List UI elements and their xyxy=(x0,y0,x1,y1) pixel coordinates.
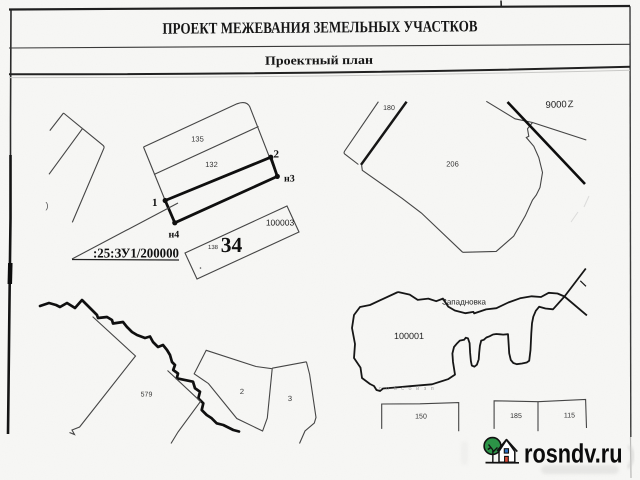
svg-text:rosndv.ru: rosndv.ru xyxy=(524,439,623,469)
svg-text:579: 579 xyxy=(141,392,153,399)
svg-text:9000Z: 9000Z xyxy=(545,99,574,111)
svg-text:1: 1 xyxy=(152,197,158,209)
svg-text:с о б с о й з п: с о б с о й з п xyxy=(379,385,436,392)
svg-text:3: 3 xyxy=(288,394,292,403)
svg-text:100001: 100001 xyxy=(394,331,424,341)
svg-text:150: 150 xyxy=(415,414,427,421)
svg-text:135: 135 xyxy=(191,135,204,144)
svg-text:Проектный план: Проектный план xyxy=(265,53,373,68)
svg-text:2: 2 xyxy=(240,387,244,396)
svg-text:206: 206 xyxy=(446,160,459,169)
svg-text:ПРОЕКТ МЕЖЕВАНИЯ ЗЕМЕЛЬНЫХ УЧА: ПРОЕКТ МЕЖЕВАНИЯ ЗЕМЕЛЬНЫХ УЧАСТКОВ xyxy=(162,18,477,37)
svg-text:Западновка: Западновка xyxy=(442,298,487,307)
svg-text:2: 2 xyxy=(274,149,280,161)
svg-text:185: 185 xyxy=(510,413,522,420)
svg-text:180: 180 xyxy=(383,105,395,112)
svg-text:100003: 100003 xyxy=(266,218,295,228)
svg-text:н4: н4 xyxy=(169,230,180,241)
svg-text:): ) xyxy=(46,201,49,211)
svg-text:н3: н3 xyxy=(284,174,295,185)
svg-text:34: 34 xyxy=(221,233,243,257)
svg-text::25:ЗУ1/200000: :25:ЗУ1/200000 xyxy=(93,246,179,261)
svg-text:138: 138 xyxy=(208,244,219,251)
svg-text:115: 115 xyxy=(564,413,575,420)
svg-text:132: 132 xyxy=(205,160,218,169)
